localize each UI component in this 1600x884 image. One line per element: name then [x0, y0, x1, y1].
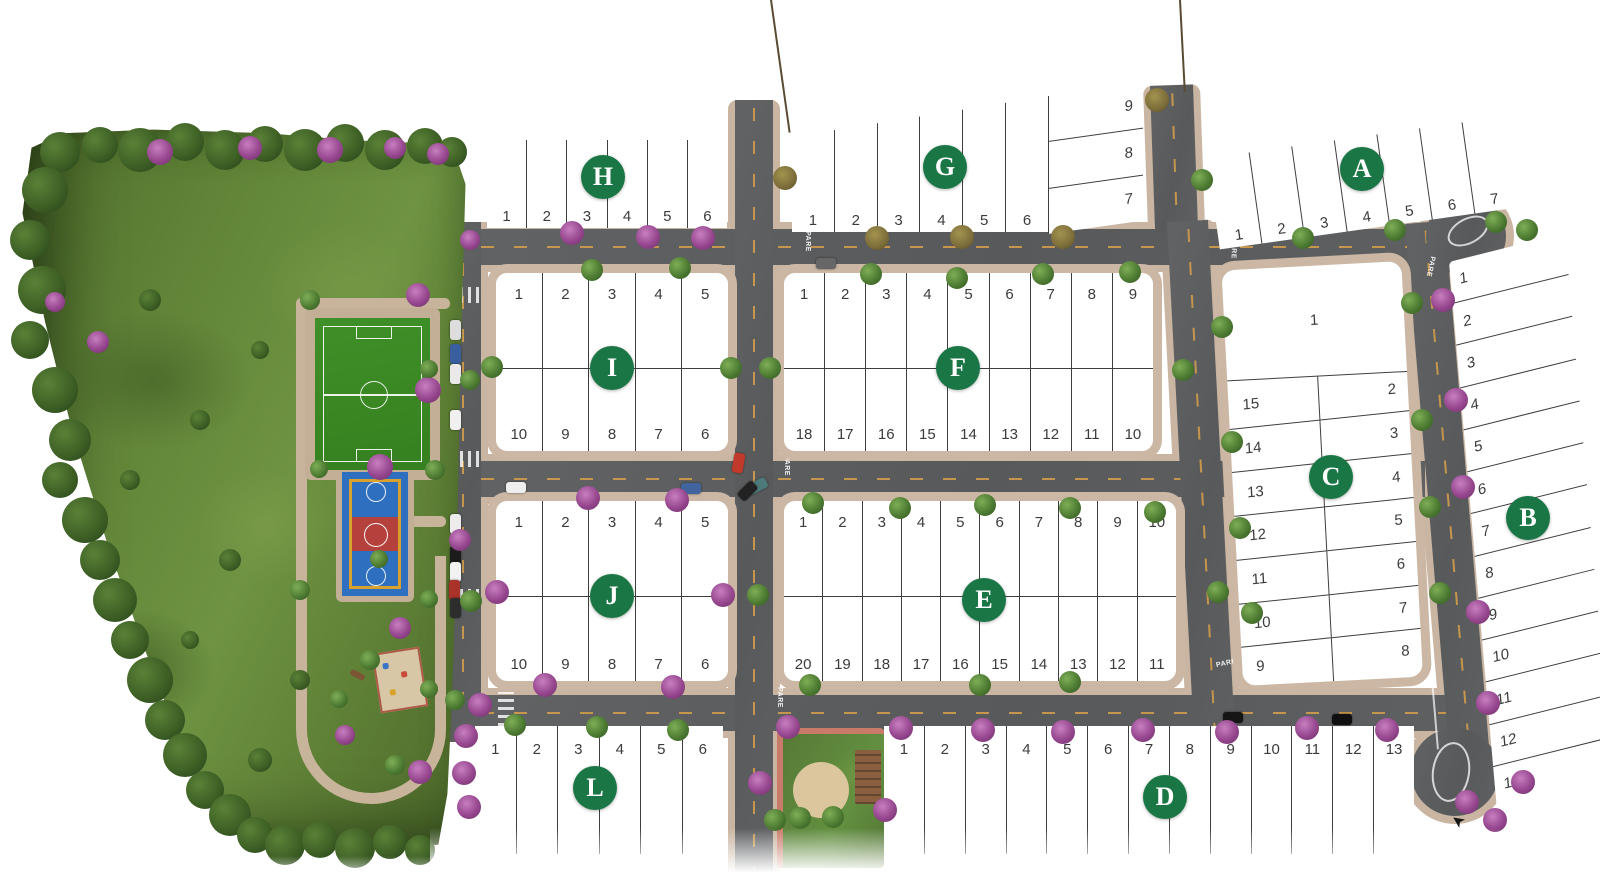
tree-icon [62, 497, 108, 543]
street-tree-icon [1419, 496, 1441, 518]
lot[interactable]: 5 [1047, 726, 1088, 854]
tree-icon [1145, 88, 1169, 112]
lot-number: 7 [1047, 287, 1055, 304]
lot[interactable]: 5 [682, 273, 728, 368]
lot[interactable]: 2 [543, 273, 590, 368]
street-tree-icon [1401, 292, 1423, 314]
street-tree-icon [720, 357, 742, 379]
lot-number: 6 [1023, 213, 1031, 230]
flowering-tree-icon [1451, 475, 1475, 499]
lot-number: 5 [1394, 513, 1403, 530]
street-tree-icon [1485, 211, 1507, 233]
lot-number: 10 [1125, 427, 1142, 444]
pocket-park [777, 728, 884, 868]
lot[interactable]: 9 [1098, 501, 1137, 596]
tree-icon [49, 419, 91, 461]
street-tree-icon [1191, 169, 1213, 191]
lot-number: 17 [837, 427, 854, 444]
lot[interactable]: 12 [1333, 726, 1374, 854]
lot-number: 2 [838, 515, 846, 532]
lot-number: 10 [510, 657, 527, 674]
street-tree-icon [1119, 261, 1141, 283]
block-badge-E[interactable]: E [962, 578, 1006, 622]
lot[interactable]: 2 [925, 726, 966, 854]
lot[interactable]: 1 [496, 273, 543, 368]
street-tree-icon [1411, 409, 1433, 431]
lot-number: 8 [1088, 287, 1096, 304]
flowering-tree-icon [1444, 388, 1468, 412]
lot-number: 1 [1310, 312, 1319, 329]
lot[interactable]: 11 [1072, 369, 1113, 451]
tree-icon [120, 470, 140, 490]
lot[interactable]: 6 [688, 140, 727, 228]
flowering-tree-icon [776, 715, 800, 739]
tree-icon [773, 166, 797, 190]
lot-number: 8 [1186, 742, 1194, 759]
lot-number: 16 [952, 657, 969, 674]
street-tree-icon [1384, 219, 1406, 241]
lot-number: 6 [1447, 197, 1458, 215]
lot[interactable]: 6 [682, 369, 728, 451]
playground [372, 647, 429, 714]
flowering-tree-icon [457, 795, 481, 819]
lot-number: 2 [841, 287, 849, 304]
street-tree-icon [802, 492, 824, 514]
lot-number: 4 [923, 287, 931, 304]
lot-number: 18 [796, 427, 813, 444]
field-center-circle-icon [360, 381, 388, 409]
lot-number: 5 [980, 213, 988, 230]
lot[interactable]: 4 [636, 501, 683, 596]
lot[interactable]: 12 [1031, 369, 1072, 451]
lot-number: 7 [1145, 742, 1153, 759]
lot-number: 7 [1125, 191, 1133, 209]
lot-number: 8 [1125, 145, 1133, 163]
lot[interactable]: 3 [866, 273, 907, 368]
lot[interactable]: 6 [1088, 726, 1129, 854]
palm-icon [420, 360, 438, 378]
lot[interactable]: 3 [966, 726, 1007, 854]
tree-icon [82, 127, 118, 163]
lot-number: 9 [561, 657, 569, 674]
tree-icon [265, 825, 305, 865]
lot-number: 2 [1387, 382, 1396, 399]
lot-number: 1 [900, 742, 908, 759]
lot[interactable]: 1 [487, 140, 527, 228]
flowering-tree-icon [45, 292, 65, 312]
flowering-tree-icon [1431, 288, 1455, 312]
lot-number: 8 [608, 427, 616, 444]
lot[interactable]: 10 [496, 369, 543, 451]
lot[interactable]: 9 [543, 597, 590, 681]
street-tree-icon [1172, 359, 1194, 381]
flowering-tree-icon [1051, 720, 1075, 744]
lot-number: 5 [956, 515, 964, 532]
street-tree-icon [504, 714, 526, 736]
lot-number: 3 [608, 287, 616, 304]
lot[interactable]: 6 [1006, 96, 1048, 232]
lot-number: 7 [1035, 515, 1043, 532]
lot[interactable]: 7 [1031, 273, 1072, 368]
tree-icon [80, 540, 120, 580]
lot-number: 1 [799, 515, 807, 532]
lot-number: 7 [654, 657, 662, 674]
lot-number: 11 [1251, 571, 1267, 589]
lot[interactable]: 11 [1292, 726, 1333, 854]
flowering-tree-icon [415, 377, 441, 403]
lot-number: 2 [543, 209, 551, 226]
flowering-tree-icon [560, 221, 584, 245]
lot[interactable]: 1 [475, 726, 517, 854]
tree-icon [10, 220, 50, 260]
flowering-tree-icon [406, 283, 430, 307]
palm-icon [420, 590, 438, 608]
lot[interactable]: 16 [866, 369, 907, 451]
lot-number: 6 [1477, 480, 1487, 498]
lot[interactable]: 14 [1020, 597, 1059, 681]
lot[interactable]: 3 [878, 96, 921, 232]
lot-number: 3 [1319, 215, 1330, 233]
block-badge-B[interactable]: B [1506, 496, 1550, 540]
lot-number: 14 [1031, 657, 1048, 674]
lot[interactable]: 5 [963, 96, 1006, 232]
block-badge-A[interactable]: A [1340, 147, 1384, 191]
tree-icon [111, 621, 149, 659]
play-equipment-icon [382, 663, 389, 670]
lot-number: 5 [1404, 203, 1415, 221]
lot-number: 2 [1463, 312, 1473, 330]
lot[interactable]: 2 [517, 726, 559, 854]
lot[interactable]: 5 [682, 501, 728, 596]
flowering-tree-icon [971, 718, 995, 742]
parked-car-icon [450, 562, 461, 582]
lot[interactable]: 10 [1252, 726, 1293, 854]
flowering-tree-icon [889, 716, 913, 740]
lot-number: 5 [964, 287, 972, 304]
street-tree-icon [1229, 517, 1251, 539]
lot-number: 10 [1263, 742, 1280, 759]
lot[interactable]: 9 [1241, 639, 1332, 691]
lot-number: 1 [502, 209, 510, 226]
flowering-tree-icon [873, 798, 897, 822]
lot-number: 5 [663, 209, 671, 226]
multisport-court [342, 472, 408, 596]
lot[interactable]: 12 [1098, 597, 1137, 681]
tree-icon [950, 225, 974, 249]
lot-number: 3 [894, 213, 902, 230]
lot[interactable]: 2 [823, 501, 862, 596]
flowering-tree-icon [1295, 716, 1319, 740]
flowering-tree-icon [408, 760, 432, 784]
lot-number: 7 [1399, 600, 1408, 617]
palm-icon [445, 690, 465, 710]
lot[interactable]: 7 [636, 597, 683, 681]
flowering-tree-icon [485, 580, 509, 604]
park-path [410, 516, 446, 527]
street-tree-icon [1516, 219, 1538, 241]
lot[interactable]: 19 [823, 597, 862, 681]
lot-number: 5 [657, 742, 665, 759]
palm-icon [370, 550, 388, 568]
tree-icon [93, 578, 137, 622]
lot[interactable]: 11 [1138, 597, 1176, 681]
court-key-icon [366, 566, 386, 586]
parked-car-icon [450, 344, 461, 364]
lot[interactable]: 7 [636, 369, 683, 451]
tree-icon [11, 321, 49, 359]
parked-car-icon [450, 320, 461, 340]
street-tree-icon [1032, 263, 1054, 285]
tree-icon [405, 835, 435, 865]
street-tree-icon [1292, 227, 1314, 249]
lot-number: 1 [1234, 227, 1245, 245]
lot[interactable]: 4 [636, 273, 683, 368]
lot-number: 3 [1466, 354, 1476, 372]
lot[interactable]: 4 [1007, 726, 1048, 854]
lot-number: 2 [852, 213, 860, 230]
lot[interactable]: 2 [825, 273, 866, 368]
lot[interactable]: 2 [543, 501, 590, 596]
palm-icon [460, 370, 480, 390]
lot[interactable]: 1 [784, 273, 825, 368]
palm-icon [330, 690, 348, 708]
lot-number: 8 [608, 657, 616, 674]
palm-icon [310, 460, 328, 478]
lot-number: 9 [561, 427, 569, 444]
lot-number: 17 [913, 657, 930, 674]
street-tree-icon [799, 674, 821, 696]
lot[interactable]: 17 [825, 369, 866, 451]
lot-number: 2 [561, 515, 569, 532]
lot-number: 12 [1249, 527, 1266, 545]
lot-number: 8 [1485, 565, 1495, 583]
lot[interactable]: 8 [1331, 629, 1422, 681]
lot-number: 3 [608, 515, 616, 532]
flowering-tree-icon [317, 137, 343, 163]
lot-number: 12 [1499, 731, 1517, 752]
lot-number: 12 [1345, 742, 1362, 759]
flowering-tree-icon [1455, 790, 1479, 814]
lot-number: 12 [1042, 427, 1059, 444]
lot-number: 15 [991, 657, 1008, 674]
lot-number: 3 [583, 209, 591, 226]
lot-number: 4 [623, 209, 631, 226]
lot-number: 1 [809, 213, 817, 230]
street-tree-icon [1221, 431, 1243, 453]
lot[interactable]: 17 [902, 597, 941, 681]
block-badge-I[interactable]: I [590, 346, 634, 390]
lot-number: 3 [981, 742, 989, 759]
tree-icon [248, 748, 272, 772]
street-tree-icon [889, 497, 911, 519]
pergola-icon [855, 750, 881, 804]
lot-number: 2 [533, 742, 541, 759]
tree-icon [865, 226, 889, 250]
flowering-tree-icon [1466, 600, 1490, 624]
lot[interactable]: 18 [863, 597, 902, 681]
lot-number: 6 [703, 209, 711, 226]
lot-number: 15 [919, 427, 936, 444]
parked-car-icon [450, 410, 461, 430]
lot[interactable]: 5 [641, 726, 683, 854]
palm-icon [360, 650, 380, 670]
lot[interactable]: 9 [1113, 273, 1153, 368]
block-C-col-right: 2345678 [1318, 367, 1423, 681]
lot-number: 13 [1001, 427, 1018, 444]
flowering-tree-icon [1131, 718, 1155, 742]
flowering-tree-icon [367, 454, 393, 480]
tree-icon [1051, 225, 1075, 249]
street-tree-icon [1059, 497, 1081, 519]
lot[interactable]: 2 [835, 96, 878, 232]
lot-number: 9 [1227, 742, 1235, 759]
lot-number: 6 [701, 657, 709, 674]
stop-marking: PARE [804, 231, 811, 252]
lot-number: 11 [1149, 657, 1165, 674]
block-badge-F[interactable]: F [936, 346, 980, 390]
lot[interactable]: 6 [682, 597, 728, 681]
lot[interactable]: 13 [1059, 597, 1098, 681]
lot-number: 20 [795, 657, 812, 674]
palm-icon [460, 590, 482, 612]
flowering-tree-icon [1375, 718, 1399, 742]
lot-number: 14 [1244, 440, 1261, 458]
lot[interactable]: 10 [496, 597, 543, 681]
lot[interactable]: 1 [884, 726, 925, 854]
lot-number: 7 [1481, 523, 1491, 541]
flowering-tree-icon [1511, 770, 1535, 794]
block-badge-J[interactable]: J [590, 574, 634, 618]
street-tree-icon [669, 257, 691, 279]
car-icon [1332, 714, 1352, 725]
tree-icon [219, 549, 241, 571]
street-tree-icon [667, 719, 689, 741]
tree-icon [127, 657, 173, 703]
lot-number: 12 [1109, 657, 1126, 674]
lot-number: 9 [1256, 659, 1265, 676]
lot[interactable]: 9 [543, 369, 590, 451]
tree-icon [181, 631, 199, 649]
palm-icon [425, 460, 445, 480]
flowering-tree-icon [1215, 720, 1239, 744]
play-equipment-icon [389, 689, 396, 696]
street-tree-icon [586, 716, 608, 738]
lot[interactable]: 20 [784, 597, 823, 681]
flowering-tree-icon [636, 225, 660, 249]
lot-number: 10 [510, 427, 527, 444]
flowering-tree-icon [452, 761, 476, 785]
lot-number: 5 [1063, 742, 1071, 759]
lot-number: 8 [1401, 644, 1410, 661]
block-badge-G[interactable]: G [923, 145, 967, 189]
lot[interactable]: 2 [527, 140, 567, 228]
block-badge-H[interactable]: H [581, 155, 625, 199]
block-badge-D[interactable]: D [1143, 775, 1187, 819]
street-tree-icon [481, 356, 503, 378]
boundary-line [1179, 0, 1186, 92]
lot-number: 3 [878, 515, 886, 532]
street-tree-icon [1059, 671, 1081, 693]
tree-icon [190, 410, 210, 430]
lot[interactable]: 9 [1211, 726, 1252, 854]
lot-number: 18 [873, 657, 890, 674]
lot[interactable]: 18 [784, 369, 825, 451]
lot-number: 4 [616, 742, 624, 759]
tree-icon [22, 167, 68, 213]
court-key-icon [366, 482, 386, 502]
lot-number: 14 [960, 427, 977, 444]
block-G: 123456 [792, 96, 1048, 232]
lot-number: 5 [701, 287, 709, 304]
lot[interactable]: 1 [792, 96, 835, 232]
flowering-tree-icon [238, 136, 262, 160]
lot[interactable]: 8 [1072, 273, 1113, 368]
flowering-tree-icon [87, 331, 109, 353]
flowering-tree-icon [691, 226, 715, 250]
lot-number: 6 [1005, 287, 1013, 304]
palm-icon [300, 290, 320, 310]
lot[interactable]: 13 [990, 369, 1031, 451]
flowering-tree-icon [665, 488, 689, 512]
lot-number: 2 [561, 287, 569, 304]
lot-number: 10 [1492, 647, 1510, 668]
tree-icon [373, 825, 407, 859]
lot-number: 4 [917, 515, 925, 532]
block-badge-L[interactable]: L [573, 766, 617, 810]
lot-number: 7 [654, 427, 662, 444]
lot-number: 2 [941, 742, 949, 759]
street-tree-icon [946, 267, 968, 289]
tree-icon [40, 132, 80, 172]
lot-number: 1 [800, 287, 808, 304]
street-tree-icon [969, 674, 991, 696]
edge-fade [0, 856, 440, 884]
flowering-tree-icon [661, 675, 685, 699]
flowering-tree-icon [576, 486, 600, 510]
lot[interactable]: 13 [1374, 726, 1414, 854]
flowering-tree-icon [389, 617, 411, 639]
tree-icon [302, 822, 338, 858]
flowering-tree-icon [449, 529, 471, 551]
soccer-field [315, 318, 430, 470]
lot-number: 2 [1276, 221, 1287, 239]
parked-car-icon [449, 580, 460, 600]
lot[interactable]: 7 [1020, 501, 1059, 596]
lot-number: 1 [515, 287, 523, 304]
lot[interactable]: 1 [784, 501, 823, 596]
lot-number: 11 [1084, 427, 1100, 444]
tree-icon [290, 670, 310, 690]
lot[interactable]: 1 [1221, 261, 1407, 381]
play-equipment-icon [401, 671, 408, 678]
street-tree-icon [860, 263, 882, 285]
lot[interactable]: 5 [648, 140, 688, 228]
block-badge-C[interactable]: C [1309, 455, 1353, 499]
lot-number: 6 [701, 427, 709, 444]
palm-icon [385, 755, 405, 775]
flowering-tree-icon [1483, 808, 1507, 832]
lot-number: 9 [1129, 287, 1137, 304]
lot[interactable]: 6 [683, 726, 724, 854]
palm-icon [420, 680, 438, 698]
street-tree-icon [581, 259, 603, 281]
lot[interactable]: 6 [990, 273, 1031, 368]
palm-icon [290, 580, 310, 600]
street-tree-icon [1144, 501, 1166, 523]
lot-number: 9 [1113, 515, 1121, 532]
lot-number: 4 [1470, 396, 1480, 414]
lot[interactable]: 10 [1113, 369, 1153, 451]
